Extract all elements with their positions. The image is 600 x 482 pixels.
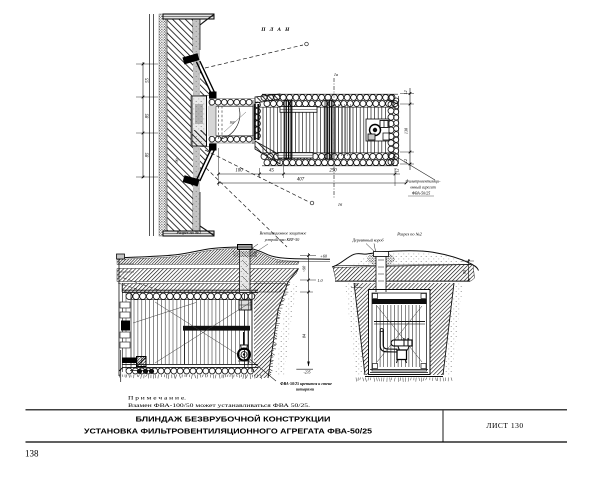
svg-text:1б: 1б [338, 202, 343, 207]
svg-text:90: 90 [463, 270, 467, 274]
svg-text:Деревянный короб: Деревянный короб [352, 238, 385, 243]
svg-text:84: 84 [302, 334, 307, 338]
svg-text:250: 250 [329, 169, 337, 174]
svg-text:130: 130 [404, 127, 409, 134]
svg-text:П р и м е ч а н и е.: П р и м е ч а н и е. [128, 396, 186, 402]
svg-text:45: 45 [269, 169, 274, 174]
svg-text:БЛИНДАЖ БЕЗВРУБОЧНОЙ КОНСТРУКЦ: БЛИНДАЖ БЕЗВРУБОЧНОЙ КОНСТРУКЦИИ [136, 415, 331, 424]
svg-text:П Л А Н: П Л А Н [260, 27, 291, 33]
svg-text:Разрез по №2: Разрез по №2 [396, 232, 422, 237]
svg-text:100: 100 [235, 169, 243, 174]
svg-text:ФВА-50/25 крепится к стене: ФВА-50/25 крепится к стене [280, 381, 332, 386]
svg-text:1а: 1а [334, 72, 338, 77]
svg-text:-235: -235 [304, 371, 311, 375]
svg-text:12: 12 [396, 169, 400, 173]
svg-text:устройство КВУ-50: устройство КВУ-50 [264, 237, 300, 242]
svg-text:УСТАНОВКА ФИЛЬТРОВЕНТИЛЯЦИОННО: УСТАНОВКА ФИЛЬТРОВЕНТИЛЯЦИОННОГО АГРЕГАТ… [84, 429, 372, 436]
svg-text:Фильтровентиляци-: Фильтровентиляци- [406, 179, 442, 184]
svg-text:Разрез по №1: Разрез по №1 [176, 230, 202, 235]
svg-text:ФВА-50/25: ФВА-50/25 [412, 191, 430, 196]
svg-text:1.0: 1.0 [317, 278, 323, 283]
svg-text:ЛИСТ 130: ЛИСТ 130 [486, 421, 523, 430]
svg-text:12: 12 [403, 90, 408, 94]
svg-text:+60: +60 [320, 254, 328, 259]
svg-text:онный агрегат: онный агрегат [410, 185, 436, 190]
svg-text:Вентиляционное защитное: Вентиляционное защитное [260, 231, 307, 236]
svg-text:штырями: штырями [296, 387, 315, 392]
svg-text:~90: ~90 [302, 266, 307, 272]
svg-text:Взамен ФВА-100/50 может устана: Взамен ФВА-100/50 может устанавливаться … [128, 403, 311, 409]
svg-text:35: 35 [354, 282, 358, 287]
svg-text:138: 138 [25, 449, 39, 459]
svg-text:407: 407 [297, 178, 305, 183]
svg-text:90°: 90° [230, 120, 236, 125]
